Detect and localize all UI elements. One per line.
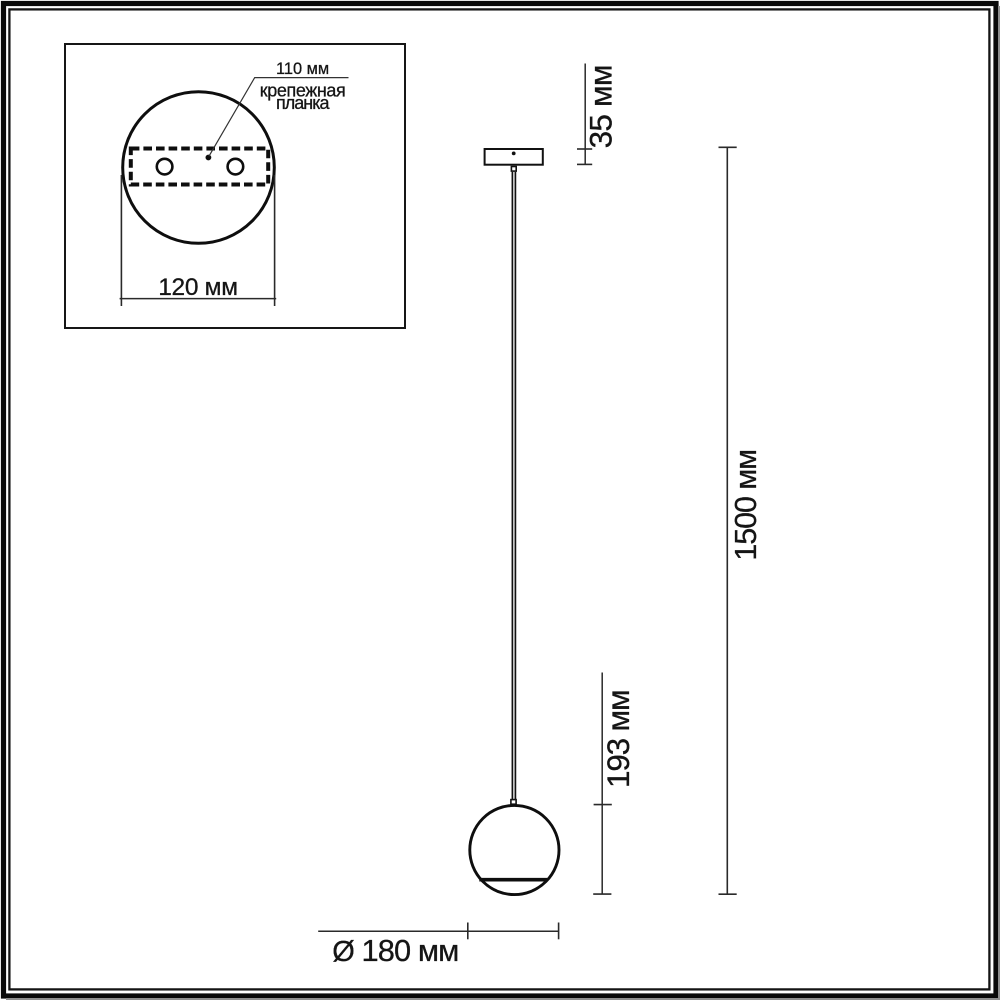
svg-text:планка: планка <box>276 93 330 113</box>
svg-text:120 мм: 120 мм <box>158 274 238 301</box>
svg-text:1500 мм: 1500 мм <box>729 450 763 561</box>
svg-text:110 мм: 110 мм <box>276 60 329 78</box>
svg-text:Ø 180 мм: Ø 180 мм <box>332 933 458 968</box>
svg-text:35 мм: 35 мм <box>582 65 618 148</box>
svg-text:193 мм: 193 мм <box>600 691 636 788</box>
